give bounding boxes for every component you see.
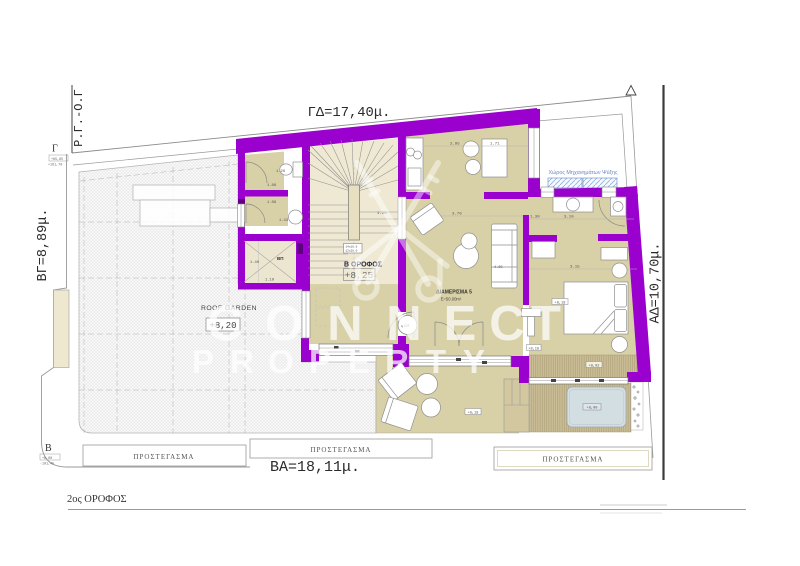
- svg-text:Χώρος Μηχανημάτων Ψύξης: Χώρος Μηχανημάτων Ψύξης: [548, 169, 617, 176]
- svg-text:4.85: 4.85: [494, 266, 503, 270]
- svg-text:3.10: 3.10: [564, 216, 574, 220]
- svg-text:Ρ.Γ.-Ο.Γ: Ρ.Γ.-Ο.Γ: [72, 89, 86, 147]
- svg-text:14x18.6: 14x18.6: [346, 245, 358, 248]
- svg-text:1.30: 1.30: [530, 216, 540, 220]
- svg-text:O: O: [268, 343, 294, 380]
- svg-text:+8,18: +8,18: [468, 411, 479, 415]
- svg-text:2.95: 2.95: [450, 143, 460, 147]
- svg-text:ΠΡΟΣΤΕΓΑΣΜΑ: ΠΡΟΣΤΕΓΑΣΜΑ: [133, 453, 194, 461]
- svg-text:+8,60: +8,60: [42, 457, 52, 461]
- svg-text:T: T: [531, 297, 561, 351]
- svg-text:-101,45: -101,45: [40, 463, 54, 467]
- svg-text:+8,02: +8,02: [589, 364, 600, 368]
- svg-text:ΓΔ=17,40μ.: ΓΔ=17,40μ.: [308, 106, 391, 121]
- svg-text:1.40: 1.40: [250, 261, 260, 265]
- svg-text:C: C: [489, 297, 524, 351]
- svg-text:T: T: [426, 343, 446, 380]
- svg-text:1.26: 1.26: [276, 170, 286, 174]
- svg-text:ΒΑ=18,11μ.: ΒΑ=18,11μ.: [270, 459, 360, 476]
- svg-text:+65,85: +65,85: [51, 158, 63, 162]
- svg-text:R: R: [385, 343, 409, 380]
- svg-text:12x28.0: 12x28.0: [346, 249, 358, 252]
- svg-text:ΒΓ=8,89μ.: ΒΓ=8,89μ.: [36, 209, 51, 282]
- svg-text:1.19: 1.19: [265, 279, 275, 283]
- svg-text:ΑΔ=10,70μ.: ΑΔ=10,70μ.: [649, 242, 664, 323]
- svg-text:1.88: 1.88: [267, 201, 277, 205]
- svg-text:Y: Y: [463, 343, 485, 380]
- svg-text:3.70: 3.70: [452, 213, 462, 217]
- svg-text:R: R: [230, 343, 254, 380]
- svg-text:Β: Β: [45, 443, 52, 454]
- svg-text:Γ: Γ: [52, 144, 58, 155]
- svg-text:3.15: 3.15: [570, 266, 580, 270]
- svg-text:E: E: [348, 343, 370, 380]
- svg-text:ΒΠ: ΒΠ: [277, 256, 284, 261]
- svg-text:2ος ΟΡΟΦΟΣ: 2ος ΟΡΟΦΟΣ: [67, 494, 127, 505]
- svg-text:P: P: [192, 343, 214, 380]
- svg-text:+161,70: +161,70: [48, 164, 62, 168]
- svg-text:P: P: [309, 343, 331, 380]
- svg-text:1.43: 1.43: [279, 219, 289, 223]
- svg-text:1.71: 1.71: [490, 143, 500, 147]
- svg-text:+8,00: +8,00: [587, 407, 598, 411]
- svg-text:ΠΡΟΣΤΕΓΑΣΜΑ: ΠΡΟΣΤΕΓΑΣΜΑ: [542, 456, 603, 464]
- svg-text:1.88: 1.88: [267, 184, 277, 188]
- svg-text:ΠΡΟΣΤΕΓΑΣΜΑ: ΠΡΟΣΤΕΓΑΣΜΑ: [310, 446, 371, 454]
